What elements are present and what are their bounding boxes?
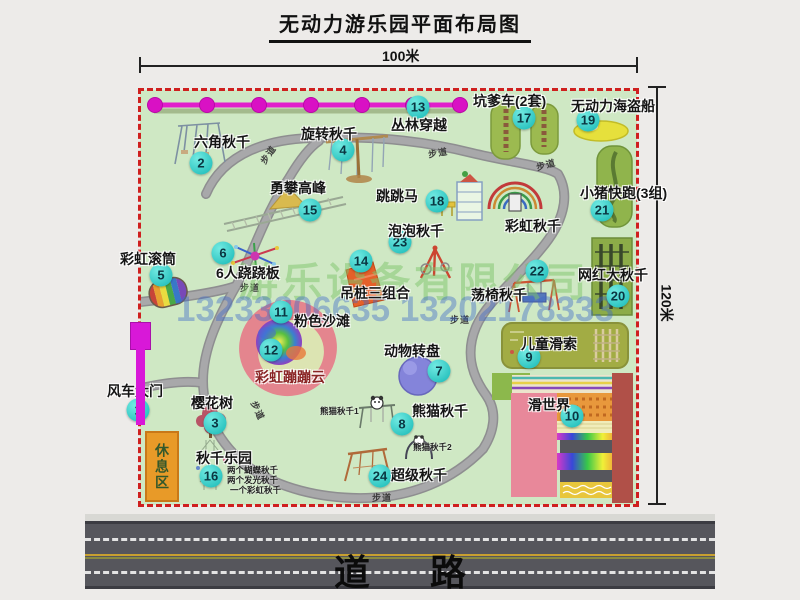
poi-label-15: 勇攀高峰 xyxy=(270,178,326,198)
poi-badge-8: 8 xyxy=(391,413,414,436)
poi-badge-2: 2 xyxy=(190,152,213,175)
dimension-label-height: 120米 xyxy=(657,284,677,321)
poi-label-5: 彩虹滚筒 xyxy=(120,249,176,269)
windmill-gate-post xyxy=(136,348,145,425)
poi-label-13: 丛林穿越 xyxy=(391,115,447,135)
dimension-tick xyxy=(636,57,638,73)
poi-label-11: 粉色沙滩 xyxy=(294,311,350,331)
poi-label-9: 儿童滑索 xyxy=(521,334,577,354)
poi-badge-3: 3 xyxy=(204,412,227,435)
poi-label-18: 跳跳马 xyxy=(376,186,418,206)
poi-sublabel: 熊猫秋千2 xyxy=(413,441,452,453)
dimension-label-width: 100米 xyxy=(382,46,419,66)
slide-world-icon xyxy=(492,373,633,503)
rainbow-swing-icon xyxy=(489,183,541,211)
rest-area: 休息区 xyxy=(145,431,179,502)
poi-label-8: 熊猫秋千 xyxy=(412,401,468,421)
dimension-tick xyxy=(648,503,666,505)
road-label: 道路 xyxy=(85,544,715,596)
windmill-gate-icon xyxy=(130,322,151,350)
poi-label-4: 旋转秋千 xyxy=(301,124,357,144)
poi-badge-22: 22 xyxy=(526,260,549,283)
poi-label-12: 彩虹蹦蹦云 xyxy=(255,367,325,387)
poi-label-17: 坑爹车(2套) xyxy=(473,91,546,111)
dimension-tick xyxy=(139,57,141,73)
poi-badge-18: 18 xyxy=(426,190,449,213)
poi-badge-14: 14 xyxy=(350,250,373,273)
poi-label-22: 荡椅秋千 xyxy=(471,285,527,305)
walkway-label: 步道 xyxy=(372,491,392,504)
poi-label-23: 泡泡秋千 xyxy=(388,221,444,241)
poi-label-1: 风车大门 xyxy=(107,381,163,401)
poi-sublabel: 一个彩虹秋千 xyxy=(230,484,281,496)
poi-sublabel: 熊猫秋千1 xyxy=(320,405,359,417)
poi-label-2: 六角秋千 xyxy=(194,132,250,152)
poi-label-3: 樱花树 xyxy=(191,393,233,413)
dimension-tick xyxy=(648,86,666,88)
poi-badge-20: 20 xyxy=(607,285,630,308)
poi-badge-15: 15 xyxy=(299,199,322,222)
road-surface: 道路 xyxy=(85,521,715,589)
road-lane-line xyxy=(85,538,715,541)
park-layout-map: 无动力游乐园平面布局图 100米 120米 xyxy=(0,0,800,600)
road: 道路 xyxy=(85,514,715,596)
rest-area-label: 休息区 xyxy=(152,443,172,491)
poi-badge-7: 7 xyxy=(428,360,451,383)
poi-label-rainbow-swing: 彩虹秋千 xyxy=(505,216,561,236)
poi-label-20: 网红大秋千 xyxy=(578,265,648,285)
poi-label-19: 无动力海盗船 xyxy=(571,96,655,116)
page-title: 无动力游乐园平面布局图 xyxy=(269,8,531,43)
poi-label-7: 动物转盘 xyxy=(384,341,440,361)
poi-label-6: 6人跷跷板 xyxy=(216,263,280,283)
poi-badge-24: 24 xyxy=(369,465,392,488)
poi-label-24: 超级秋千 xyxy=(391,465,447,485)
road-sidewalk xyxy=(85,514,715,521)
poi-label-14: 吊桩三组合 xyxy=(340,283,410,303)
poi-badge-6: 6 xyxy=(212,242,235,265)
poi-badge-11: 11 xyxy=(270,301,293,324)
poi-badge-12: 12 xyxy=(260,339,283,362)
poi-label-21: 小猪快跑(3组) xyxy=(580,183,667,203)
poi-label-10: 滑世界 xyxy=(528,395,570,415)
